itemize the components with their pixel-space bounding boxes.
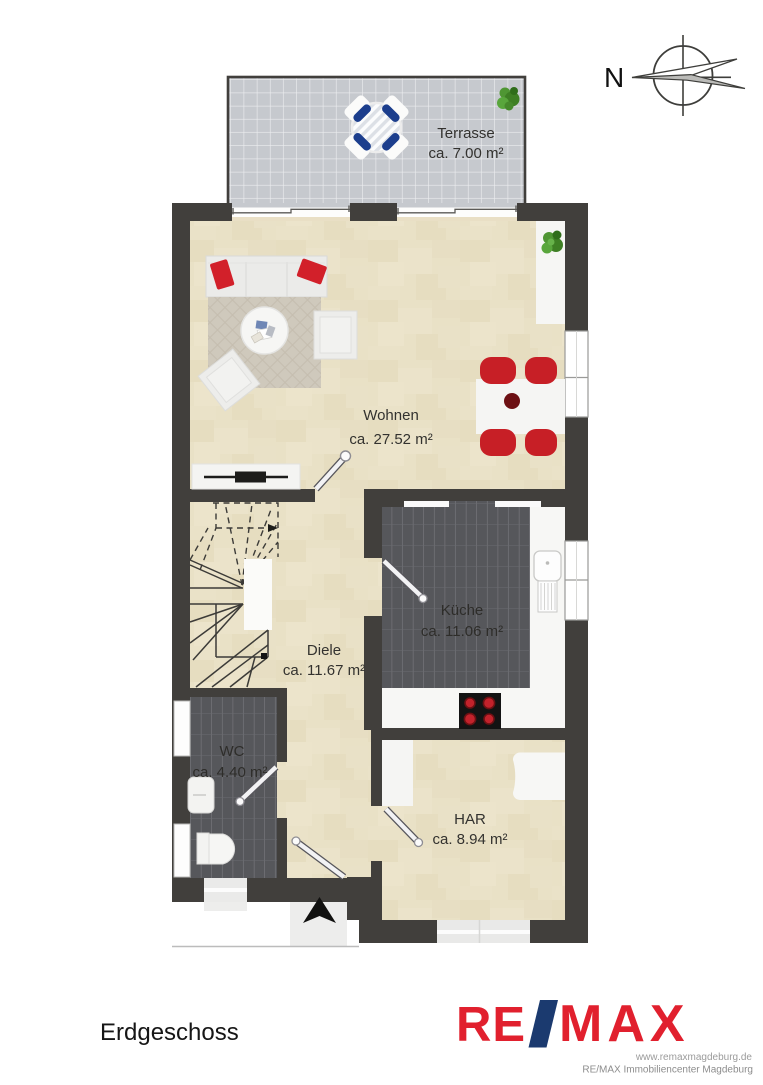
svg-text:Terrasse: Terrasse xyxy=(437,125,495,142)
svg-text:ca. 7.00 m²: ca. 7.00 m² xyxy=(428,145,503,162)
svg-text:Diele: Diele xyxy=(307,642,341,659)
svg-text:RE: RE xyxy=(456,998,526,1052)
svg-text:ca. 27.52 m²: ca. 27.52 m² xyxy=(349,431,432,448)
svg-text:Erdgeschoss: Erdgeschoss xyxy=(100,1019,239,1046)
svg-text:www.remaxmagdeburg.de: www.remaxmagdeburg.de xyxy=(635,1052,753,1063)
svg-text:Wohnen: Wohnen xyxy=(363,407,419,424)
svg-text:N: N xyxy=(604,62,624,93)
svg-text:ca. 11.67 m²: ca. 11.67 m² xyxy=(283,662,365,679)
svg-text:ca. 8.94 m²: ca. 8.94 m² xyxy=(432,831,507,848)
svg-text:ca. 11.06 m²: ca. 11.06 m² xyxy=(421,623,503,640)
svg-text:RE/MAX Immobiliencenter Magdeb: RE/MAX Immobiliencenter Magdeburg xyxy=(582,1065,753,1076)
svg-text:Küche: Küche xyxy=(441,602,484,619)
svg-text:MAX: MAX xyxy=(559,995,690,1053)
svg-text:HAR: HAR xyxy=(454,811,486,828)
svg-text:ca. 4.40 m²: ca. 4.40 m² xyxy=(192,764,267,781)
svg-text:WC: WC xyxy=(220,743,245,760)
